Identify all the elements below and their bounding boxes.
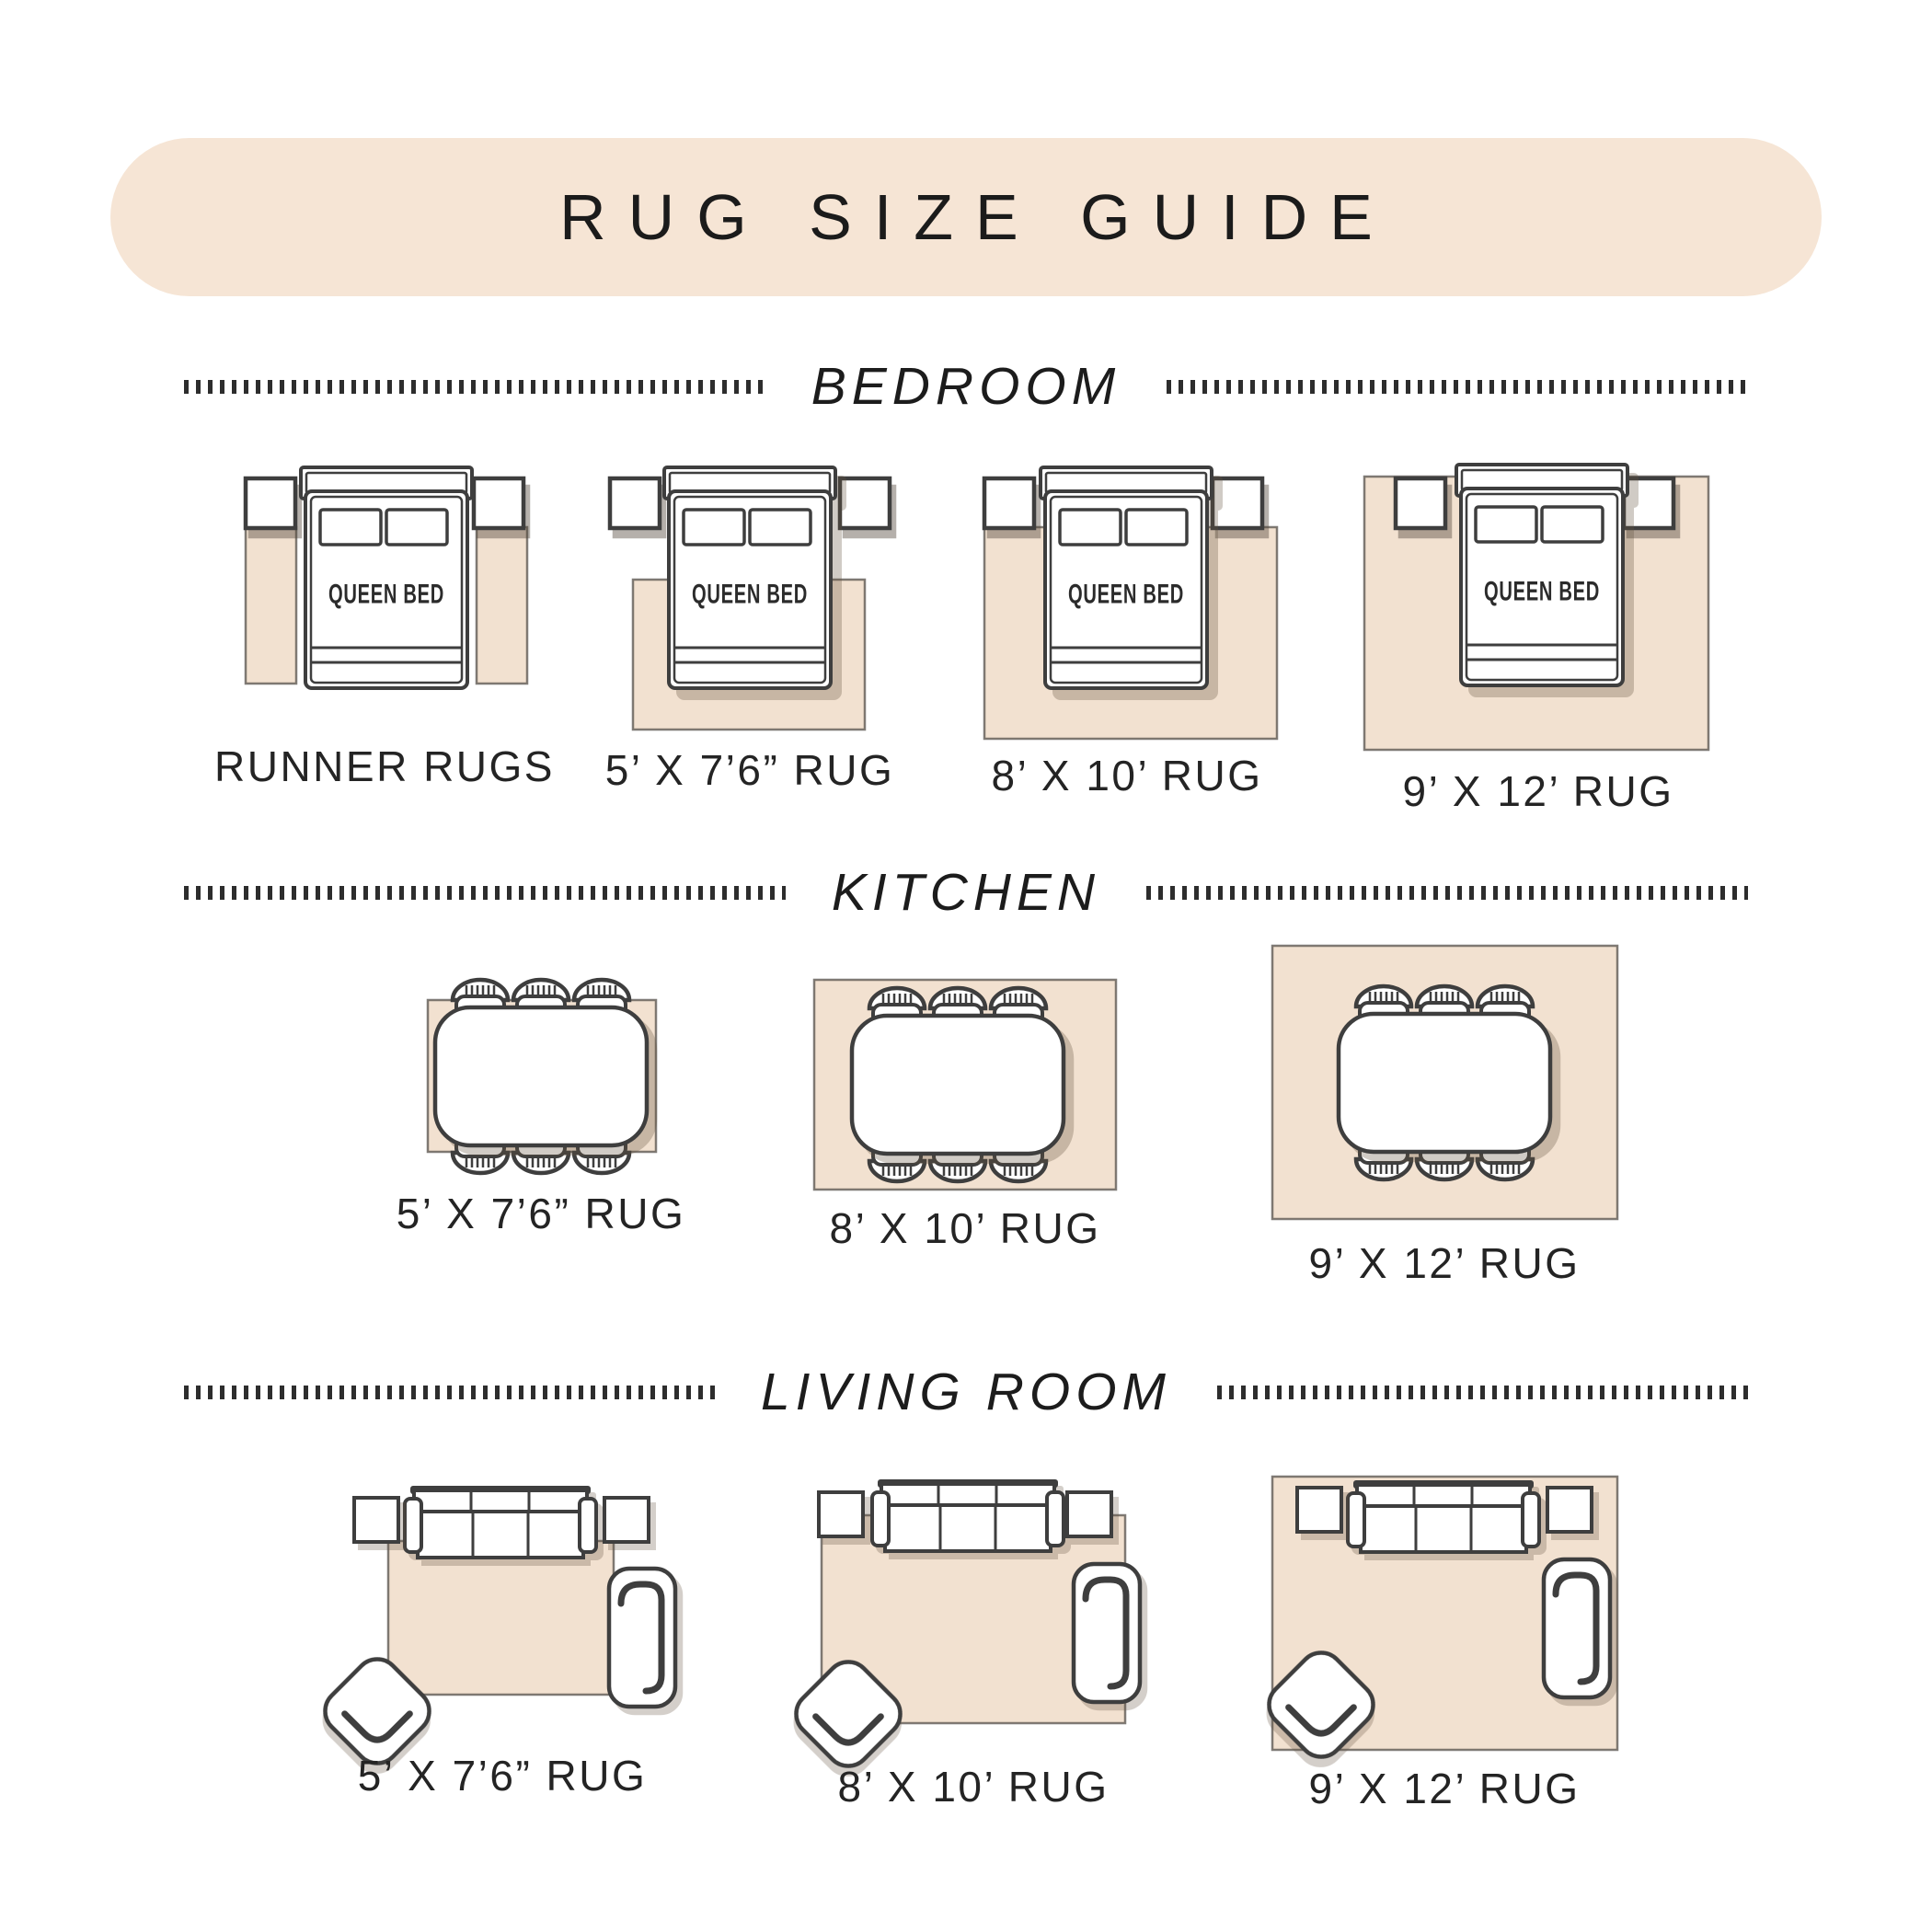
rug-size-guide: RUG SIZE GUIDE BEDROOM KITCHEN LIVING RO… xyxy=(0,0,1932,1932)
kitchen-diagram-5x76 xyxy=(386,957,704,1182)
end-table-right xyxy=(1067,1492,1111,1536)
sofa xyxy=(872,1479,1064,1551)
section-header-kitchen: KITCHEN xyxy=(184,859,1748,926)
bed-label: QUEEN BED xyxy=(692,580,808,610)
armchair xyxy=(1544,1559,1610,1697)
queen-bed: QUEEN BED xyxy=(1456,465,1627,685)
nightstand-left xyxy=(246,478,295,528)
nightstand-right xyxy=(474,478,523,528)
rug-size-label: 9’ X 12’ RUG xyxy=(1308,1238,1580,1288)
living-room-diagram-9x12 xyxy=(1260,1458,1642,1776)
rug-size-label: 5’ X 7’6” RUG xyxy=(397,1189,686,1238)
rug-size-label: 5’ X 7’6” RUG xyxy=(605,745,895,795)
rug-5x76 xyxy=(388,1541,614,1695)
living-room-diagram-8x10 xyxy=(787,1463,1155,1785)
bedroom-diagram-8x10: QUEEN BED xyxy=(980,458,1283,743)
armchair xyxy=(1074,1564,1140,1702)
bedroom-diagram-5x76: QUEEN BED xyxy=(598,458,892,734)
dining-table xyxy=(1339,1014,1550,1152)
dining-table xyxy=(435,1007,647,1145)
end-table-left xyxy=(354,1498,398,1542)
rug-size-label: 8’ X 10’ RUG xyxy=(837,1762,1109,1811)
kitchen-diagram-8x10 xyxy=(796,957,1141,1196)
nightstand-right xyxy=(1624,478,1673,528)
nightstand-left xyxy=(984,478,1034,528)
nightstand-left xyxy=(610,478,660,528)
queen-bed: QUEEN BED xyxy=(301,467,472,688)
dining-table xyxy=(852,1016,1064,1154)
dotted-divider xyxy=(1146,886,1748,900)
rug-size-label: 8’ X 10’ RUG xyxy=(991,751,1262,800)
rug-size-label: 8’ X 10’ RUG xyxy=(829,1203,1100,1253)
section-title-bedroom: BEDROOM xyxy=(811,356,1121,417)
end-table-right xyxy=(604,1498,649,1542)
bedroom-diagram-9x12: QUEEN BED xyxy=(1362,451,1720,764)
dotted-divider xyxy=(1217,1386,1748,1399)
bed-label: QUEEN BED xyxy=(1068,580,1184,610)
end-table-right xyxy=(1547,1488,1592,1532)
rug-size-label: RUNNER RUGS xyxy=(214,742,555,791)
rug-size-label: 5’ X 7’6” RUG xyxy=(358,1751,648,1800)
title-banner: RUG SIZE GUIDE xyxy=(110,138,1822,296)
section-header-bedroom: BEDROOM xyxy=(184,353,1748,420)
nightstand-left xyxy=(1396,478,1445,528)
end-table-left xyxy=(819,1492,863,1536)
section-title-kitchen: KITCHEN xyxy=(832,862,1100,923)
sofa xyxy=(405,1486,596,1558)
sofa xyxy=(1348,1480,1539,1552)
dotted-divider xyxy=(184,1386,715,1399)
bed-label: QUEEN BED xyxy=(328,580,444,610)
queen-bed: QUEEN BED xyxy=(664,467,835,688)
section-header-living-room: LIVING ROOM xyxy=(184,1359,1748,1425)
nightstand-right xyxy=(1213,478,1262,528)
bedroom-diagram-runner-rugs: QUEEN BED xyxy=(230,458,534,716)
rug-size-label: 9’ X 12’ RUG xyxy=(1402,766,1673,816)
bed-label: QUEEN BED xyxy=(1484,577,1600,607)
dotted-divider xyxy=(1167,380,1748,394)
queen-bed: QUEEN BED xyxy=(1041,467,1212,688)
dotted-divider xyxy=(184,886,786,900)
nightstand-right xyxy=(840,478,890,528)
end-table-left xyxy=(1297,1488,1341,1532)
runner-rug-right xyxy=(477,527,527,684)
kitchen-diagram-9x12 xyxy=(1265,938,1628,1228)
armchair xyxy=(609,1569,675,1707)
rug-size-label: 9’ X 12’ RUG xyxy=(1308,1764,1580,1813)
dotted-divider xyxy=(184,380,765,394)
page-title: RUG SIZE GUIDE xyxy=(537,180,1395,254)
living-room-diagram-5x76 xyxy=(304,1467,681,1785)
runner-rug-left xyxy=(246,527,296,684)
section-title-living-room: LIVING ROOM xyxy=(761,1362,1171,1422)
